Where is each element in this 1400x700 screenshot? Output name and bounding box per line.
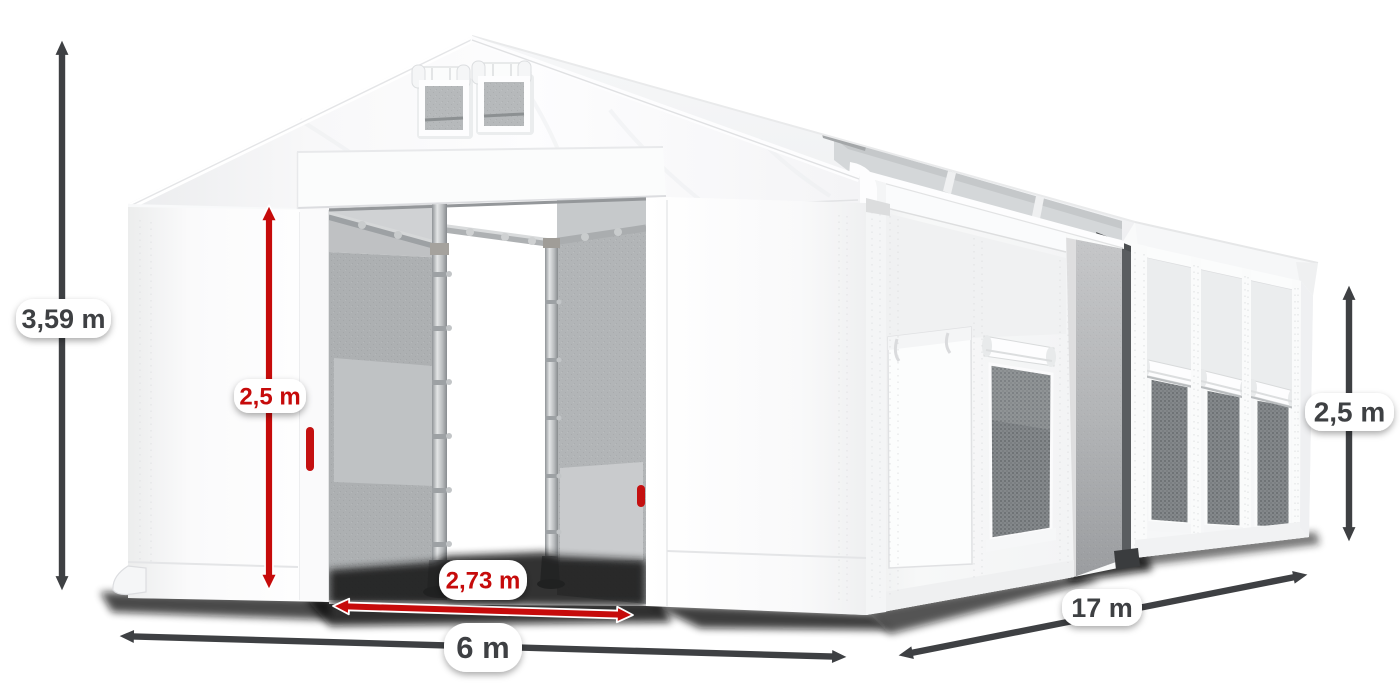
- svg-text:2,5 m: 2,5 m: [239, 383, 300, 410]
- svg-text:6 m: 6 m: [456, 630, 509, 665]
- svg-text:2,73 m: 2,73 m: [446, 567, 521, 594]
- svg-text:2,5 m: 2,5 m: [1314, 397, 1386, 428]
- svg-text:3,59 m: 3,59 m: [21, 304, 105, 334]
- svg-text:17 m: 17 m: [1071, 593, 1133, 623]
